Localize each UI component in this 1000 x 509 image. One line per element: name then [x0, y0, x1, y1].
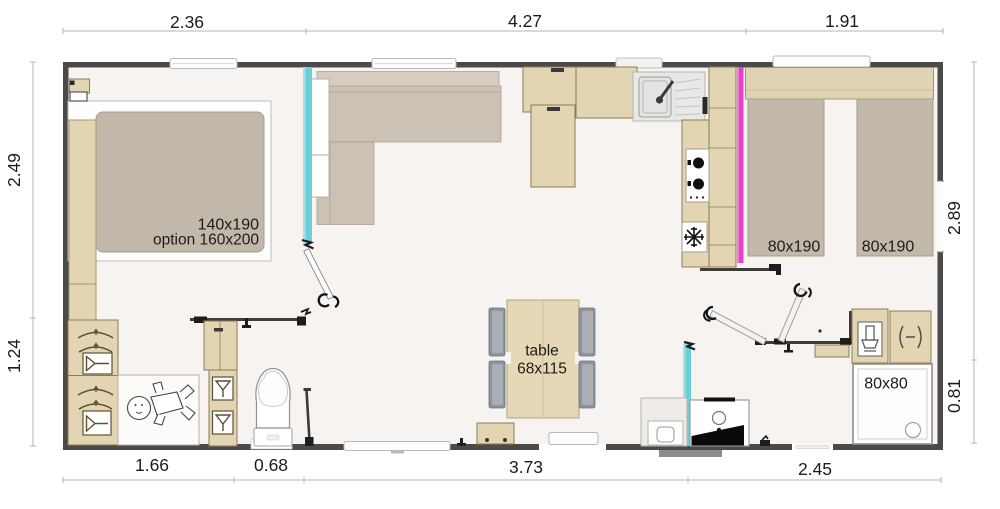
svg-text:2.45: 2.45 — [798, 459, 832, 479]
svg-text:2.36: 2.36 — [170, 12, 204, 32]
svg-text:2.49: 2.49 — [4, 153, 24, 187]
svg-text:1.66: 1.66 — [135, 455, 169, 475]
svg-text:1.24: 1.24 — [4, 339, 24, 373]
svg-text:table: table — [525, 343, 559, 360]
svg-text:0.81: 0.81 — [944, 379, 964, 413]
svg-text:80x190: 80x190 — [768, 239, 821, 256]
svg-text:68x115: 68x115 — [517, 361, 567, 378]
svg-text:1.91: 1.91 — [825, 11, 859, 31]
svg-text:80x80: 80x80 — [864, 376, 908, 393]
svg-text:80x190: 80x190 — [862, 239, 915, 256]
svg-text:0.68: 0.68 — [254, 455, 288, 475]
svg-text:2.89: 2.89 — [944, 201, 964, 235]
svg-text:4.27: 4.27 — [508, 11, 542, 31]
svg-text:3.73: 3.73 — [509, 457, 543, 477]
svg-text:option 160x200: option 160x200 — [153, 232, 259, 249]
